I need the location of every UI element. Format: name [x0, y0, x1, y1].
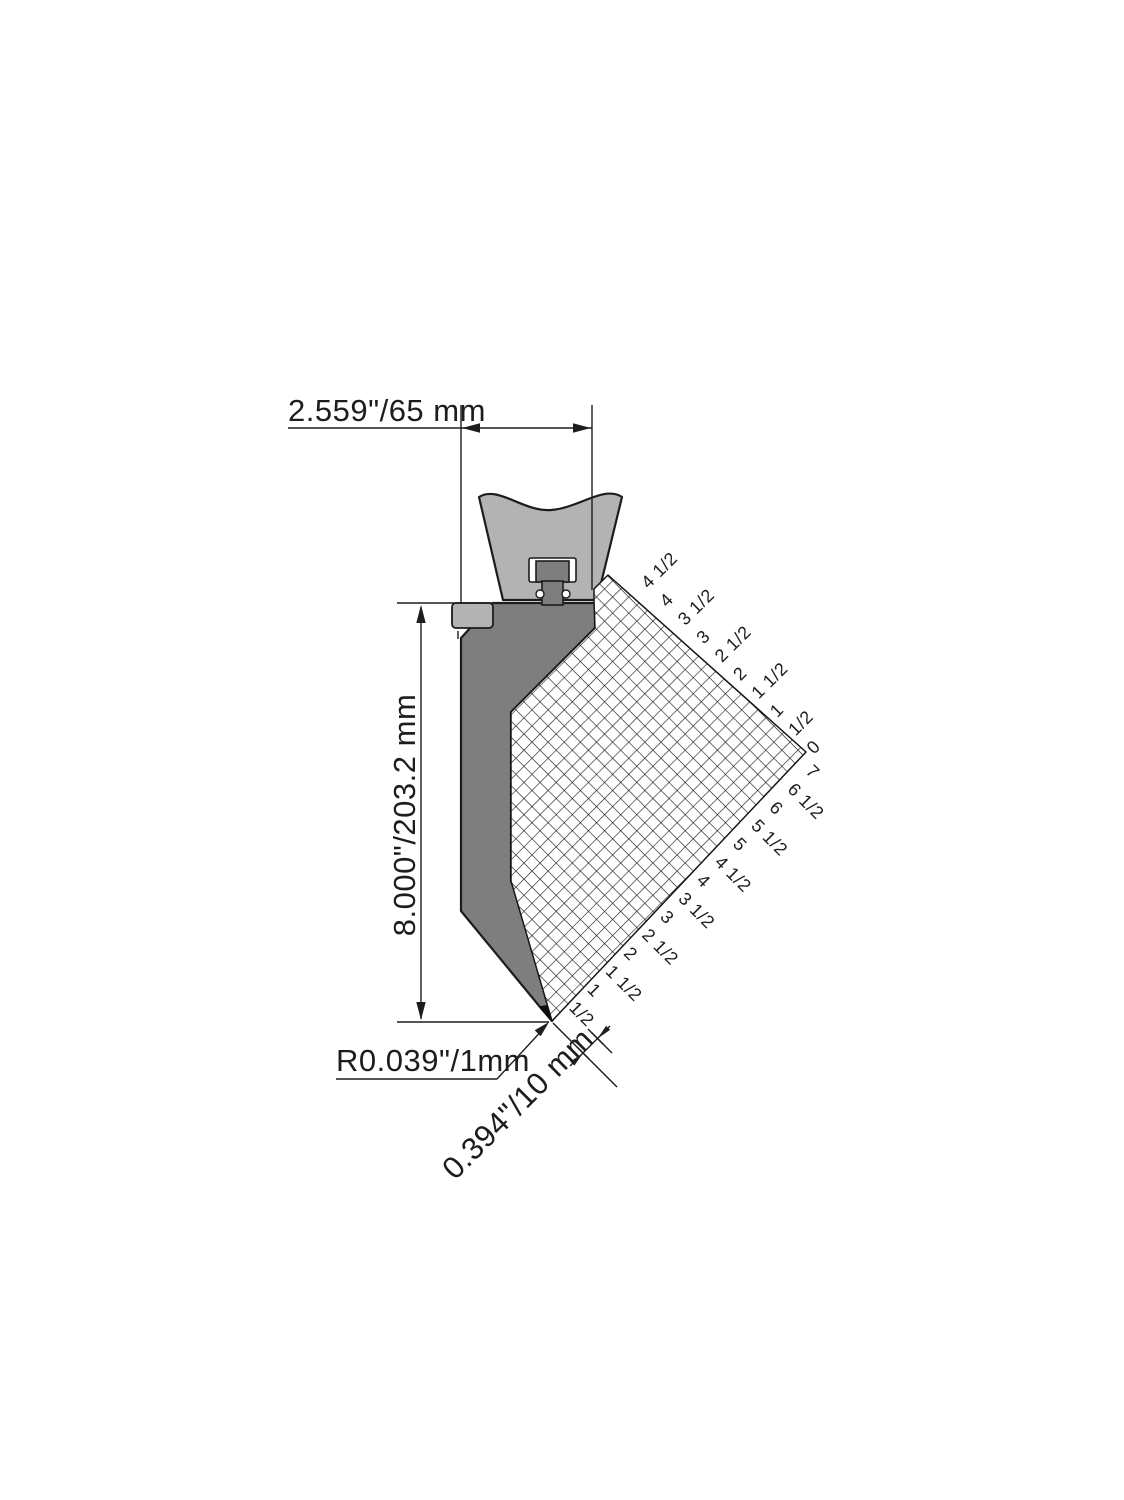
ruler-label: 4 1/2: [637, 548, 681, 592]
ruler-label: 3 1/2: [674, 585, 718, 629]
ruler-label: 3: [656, 906, 678, 928]
ruler-label: 5 1/2: [747, 815, 791, 859]
arrowhead-down: [416, 1002, 425, 1020]
arrowhead-up: [416, 605, 425, 623]
ruler-label: 3 1/2: [675, 888, 719, 932]
seat-tab: [452, 603, 493, 628]
ruler-label: 1 1/2: [602, 961, 646, 1005]
tang-neck: [542, 581, 563, 605]
ruler-label: 1: [766, 699, 788, 721]
ruler-label: 3: [692, 626, 714, 648]
tip-radius-text: R0.039"/1mm: [336, 1043, 530, 1078]
ruler-label: 6: [766, 797, 788, 819]
ruler-label: 2 1/2: [638, 925, 682, 969]
punch-diagram-canvas: 4 1/2 4 3 1/2 3 2 1/2 2 1 1/2 1 1/2 0 7 …: [0, 0, 1124, 1500]
ruler-label: 4: [656, 589, 678, 611]
ruler-label: 2 1/2: [711, 622, 755, 666]
ruler-label: 5: [729, 834, 751, 856]
ruler-label: 1 1/2: [747, 658, 791, 702]
ruler-label: 2: [729, 663, 751, 685]
ruler-label: 7: [802, 761, 824, 783]
ruler-label: 1/2: [784, 707, 817, 740]
tang-head: [536, 561, 569, 582]
punch-diagram: 4 1/2 4 3 1/2 3 2 1/2 2 1 1/2 1 1/2 0 7 …: [0, 0, 1124, 1500]
height-dim-text: 8.000"/203.2 mm: [387, 694, 422, 937]
tang-notch-left: [536, 590, 544, 598]
ruler-label: 4: [693, 870, 715, 892]
ruler-label: 0: [803, 736, 825, 758]
width-dim-text: 2.559"/65 mm: [288, 393, 486, 428]
ruler-label: 6 1/2: [784, 779, 828, 823]
ruler-label: 4 1/2: [711, 852, 755, 896]
arrowhead-tip: [535, 1022, 549, 1036]
tang-notch-right: [562, 590, 570, 598]
arrowhead-right: [573, 423, 591, 433]
